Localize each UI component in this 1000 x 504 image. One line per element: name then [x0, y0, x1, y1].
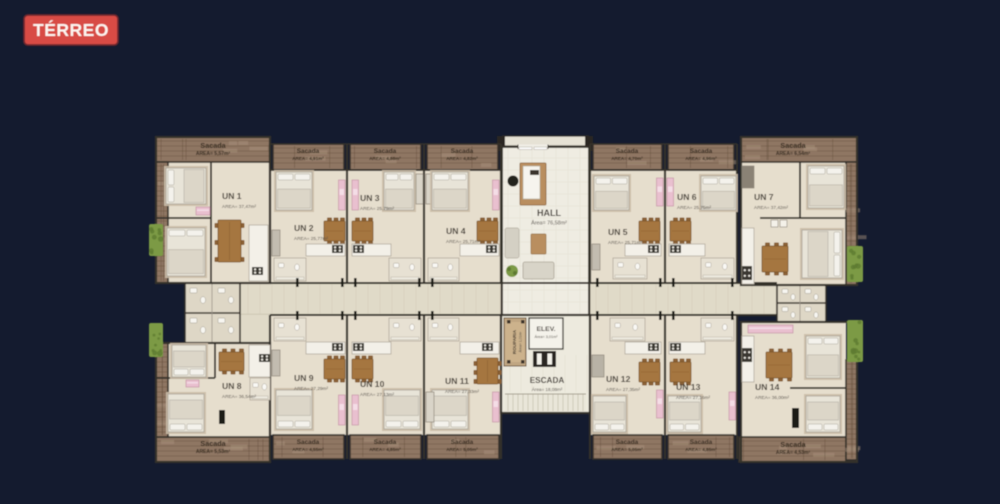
svg-text:AREA= 27,16m²: AREA= 27,16m²	[676, 395, 710, 400]
svg-text:Sacada: Sacada	[780, 440, 806, 449]
svg-text:UN 1: UN 1	[222, 191, 242, 201]
svg-text:AREA= 37,47m²: AREA= 37,47m²	[222, 204, 256, 209]
svg-text:AREA= 4,96m²: AREA= 4,96m²	[685, 156, 717, 161]
svg-text:AREA= 25,77m²: AREA= 25,77m²	[294, 236, 328, 241]
svg-text:Área= 1,01m²: Área= 1,01m²	[519, 331, 523, 353]
svg-text:UN 2: UN 2	[294, 223, 314, 233]
svg-text:Sacada: Sacada	[616, 148, 639, 155]
svg-text:UN 3: UN 3	[360, 193, 380, 203]
svg-text:AREA= 5,53m²: AREA= 5,53m²	[196, 449, 231, 455]
svg-text:ELEV.: ELEV.	[536, 326, 555, 333]
svg-text:AREA= 27,35m²: AREA= 27,35m²	[606, 387, 640, 392]
svg-text:UN 13: UN 13	[676, 382, 701, 392]
svg-text:Sacada: Sacada	[297, 439, 320, 446]
svg-text:AREA= 4,70m²: AREA= 4,70m²	[611, 156, 643, 161]
svg-text:AREA= 5,57m²: AREA= 5,57m²	[196, 151, 231, 157]
svg-text:AREA= 25,79m²: AREA= 25,79m²	[360, 206, 394, 211]
svg-text:Sacada: Sacada	[451, 148, 474, 155]
svg-text:ROUPARIA: ROUPARIA	[512, 329, 517, 354]
svg-text:AREA= 4,82m²: AREA= 4,82m²	[446, 156, 478, 161]
svg-text:AREA= 37,42m²: AREA= 37,42m²	[754, 205, 788, 210]
svg-text:AREA= 27,33m²: AREA= 27,33m²	[445, 389, 479, 394]
svg-text:AREA= 4,91m²: AREA= 4,91m²	[292, 156, 324, 161]
svg-text:AREA= 6,54m²: AREA= 6,54m²	[776, 151, 811, 157]
svg-text:AREA= 25,75m²: AREA= 25,75m²	[677, 205, 711, 210]
svg-text:AREA= 25,71m²: AREA= 25,71m²	[608, 240, 642, 245]
svg-text:UN 10: UN 10	[360, 379, 385, 389]
svg-text:Sacada: Sacada	[780, 141, 806, 150]
svg-text:Sacada: Sacada	[200, 141, 226, 150]
svg-text:UN 7: UN 7	[754, 192, 774, 202]
svg-text:UN 12: UN 12	[606, 374, 631, 384]
svg-text:UN 14: UN 14	[755, 382, 780, 392]
svg-text:Área= 76,58m²: Área= 76,58m²	[531, 220, 567, 227]
svg-text:UN 6: UN 6	[677, 192, 697, 202]
svg-text:HALL: HALL	[537, 208, 561, 218]
svg-text:UN 9: UN 9	[294, 373, 314, 383]
svg-text:Sacada: Sacada	[374, 148, 397, 155]
svg-text:AREA= 27,29m²: AREA= 27,29m²	[294, 386, 328, 391]
svg-text:Sacada: Sacada	[451, 439, 474, 446]
svg-text:AREA= 4,85m²: AREA= 4,85m²	[685, 447, 717, 452]
svg-text:Área= 3,01m²: Área= 3,01m²	[534, 335, 558, 339]
svg-text:AREA= 36,00m²: AREA= 36,00m²	[755, 395, 789, 400]
svg-text:AREA= 5,05m²: AREA= 5,05m²	[611, 447, 643, 452]
svg-text:AREA= 4,85m²: AREA= 4,85m²	[369, 447, 401, 452]
svg-text:TÉRREO: TÉRREO	[33, 19, 109, 40]
svg-text:ESCADA: ESCADA	[530, 376, 565, 385]
svg-text:UN 8: UN 8	[222, 381, 242, 391]
svg-text:Sacada: Sacada	[200, 439, 226, 448]
svg-text:AREA= 4,55m²: AREA= 4,55m²	[292, 447, 324, 452]
svg-text:AREA= 5,05m²: AREA= 5,05m²	[446, 447, 478, 452]
svg-text:Área= 18,08m²: Área= 18,08m²	[532, 386, 563, 392]
svg-text:Sacada: Sacada	[690, 148, 713, 155]
svg-text:Sacada: Sacada	[690, 439, 713, 446]
svg-text:AREA= 25,71m²: AREA= 25,71m²	[446, 239, 480, 244]
svg-text:AREA= 4,53m²: AREA= 4,53m²	[776, 450, 811, 456]
svg-text:Sacada: Sacada	[374, 439, 397, 446]
svg-text:UN 5: UN 5	[608, 227, 628, 237]
svg-text:UN 11: UN 11	[445, 376, 469, 386]
svg-text:AREA= 36,54m²: AREA= 36,54m²	[222, 394, 256, 399]
svg-text:UN 4: UN 4	[446, 226, 466, 236]
svg-text:Sacada: Sacada	[616, 439, 639, 446]
svg-text:Sacada: Sacada	[297, 148, 320, 155]
svg-text:AREA= 27,13m²: AREA= 27,13m²	[360, 392, 394, 397]
svg-text:AREA= 4,88m²: AREA= 4,88m²	[369, 156, 401, 161]
